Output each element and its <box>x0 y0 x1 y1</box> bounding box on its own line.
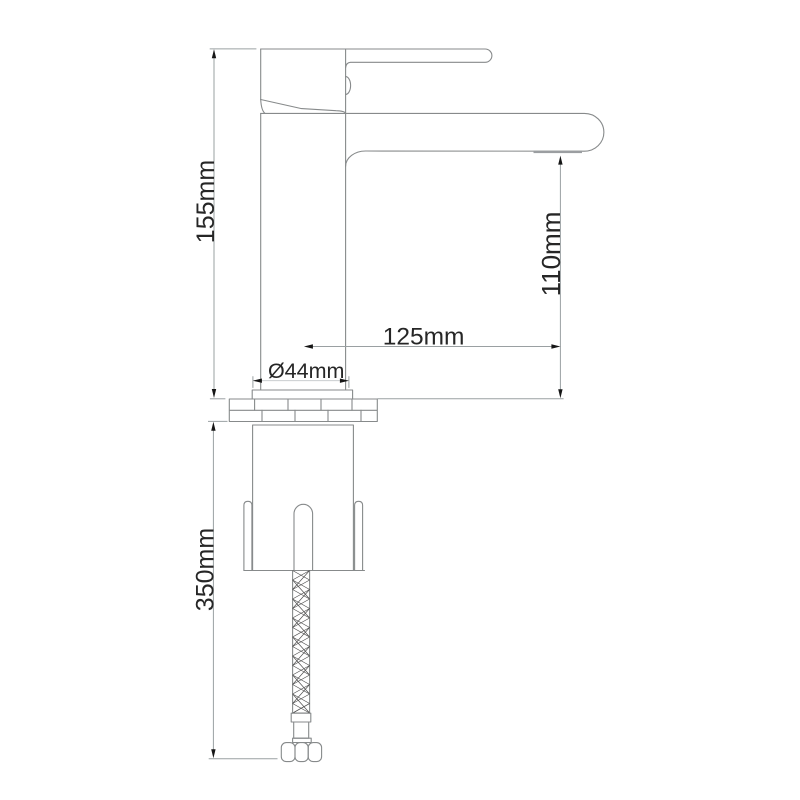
svg-text:125mm: 125mm <box>383 323 465 350</box>
svg-text:155mm: 155mm <box>192 160 220 243</box>
svg-text:350mm: 350mm <box>192 528 220 611</box>
svg-text:110mm: 110mm <box>536 212 566 297</box>
svg-text:Ø44mm: Ø44mm <box>268 359 344 383</box>
